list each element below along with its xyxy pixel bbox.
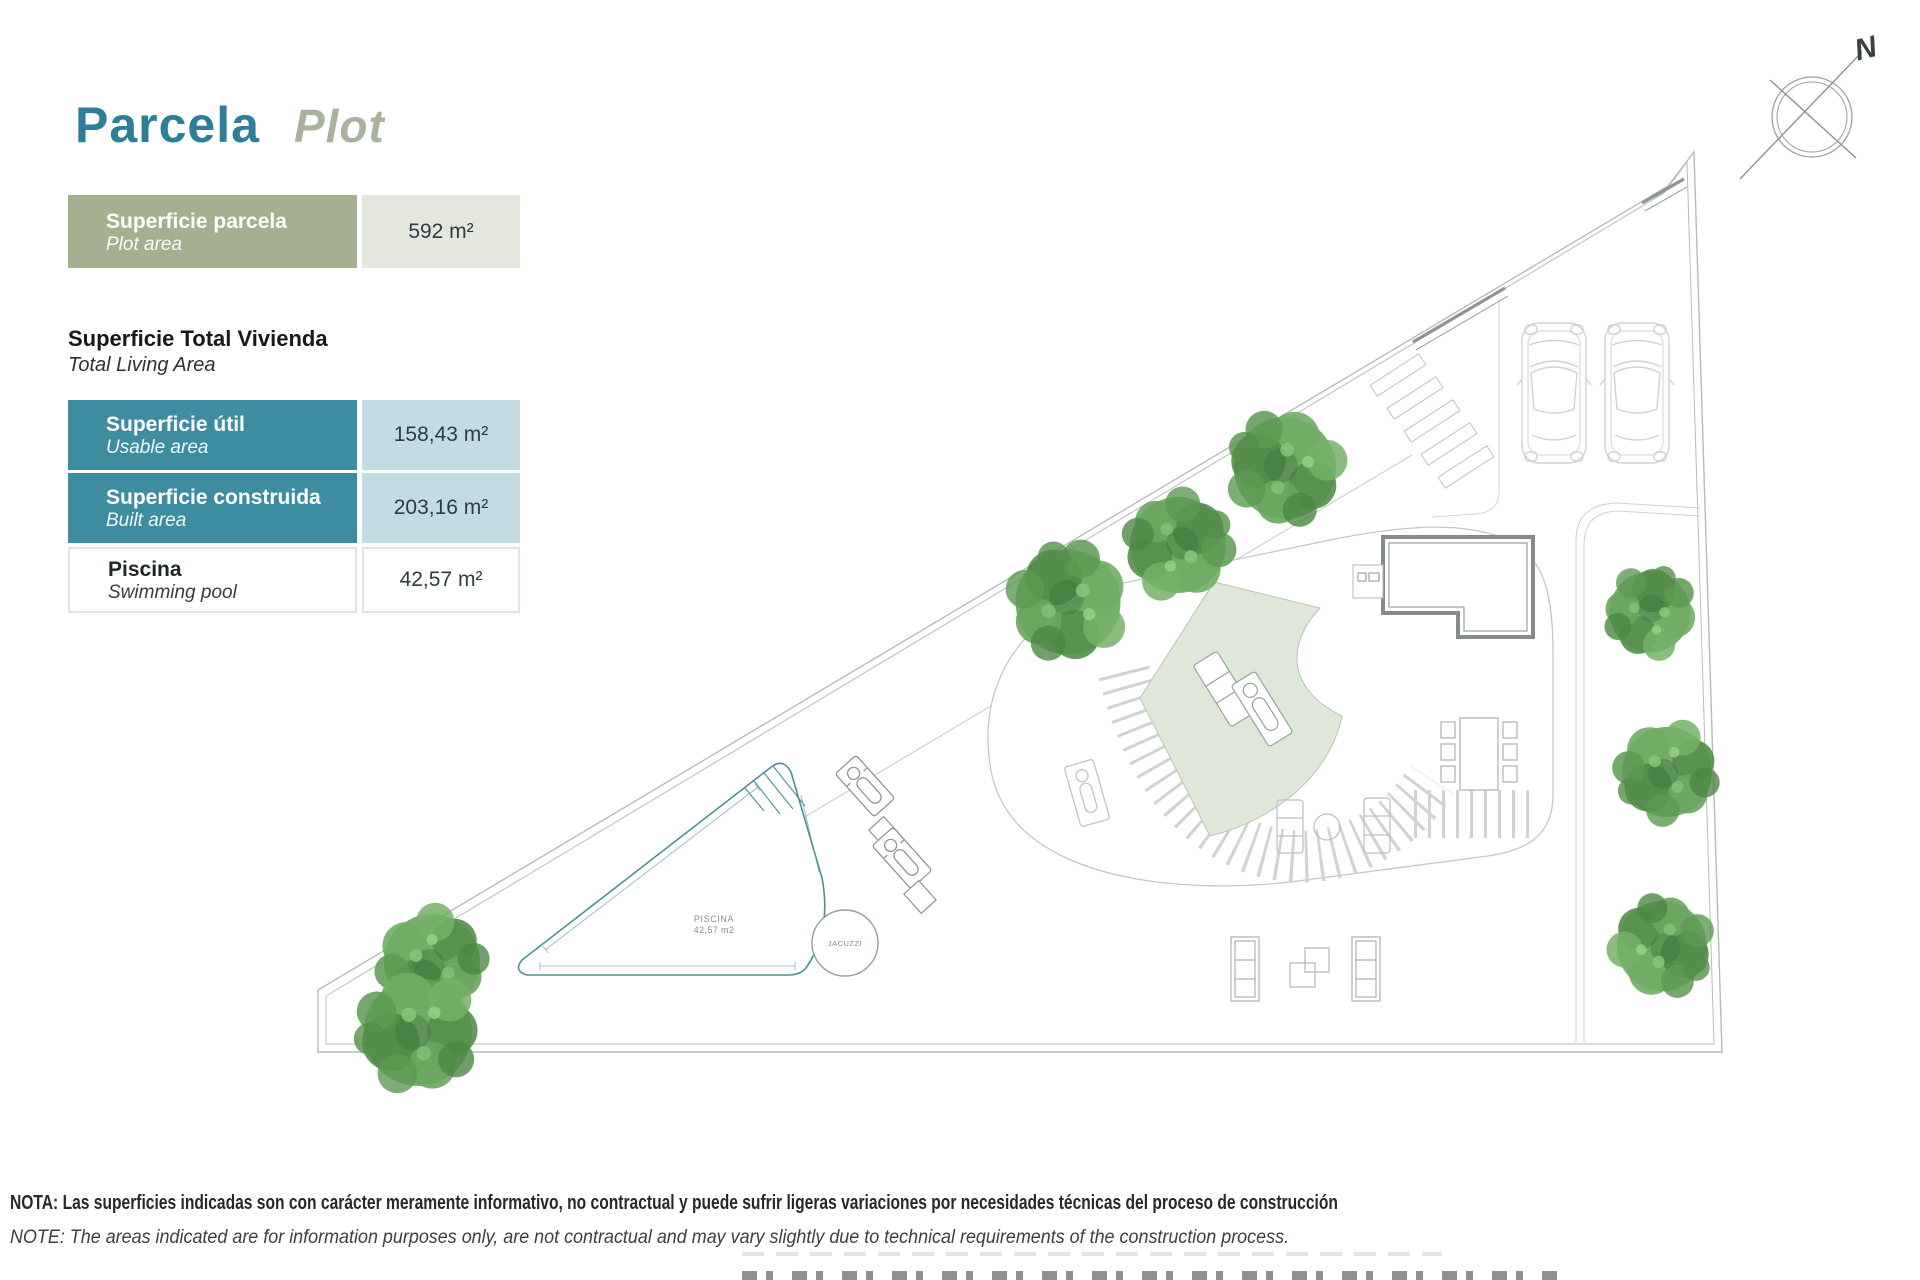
terrace-deck <box>988 527 1553 886</box>
side-table-icon <box>869 817 901 850</box>
side-table-icon <box>904 881 936 914</box>
compass-icon: N <box>1740 30 1881 179</box>
site-plan-drawing: PISCINA 42,57 m2 JACUZZI N <box>0 0 1920 1280</box>
label-en: Usable area <box>106 437 349 459</box>
site-plan-page: PISCINA 42,57 m2 JACUZZI N Parcela Plot <box>0 0 1920 1280</box>
compass-north-label: N <box>1851 30 1881 68</box>
garden-strip <box>1576 503 1700 1042</box>
plot-area-label-cell: Superficie parcela Plot area <box>68 195 357 268</box>
plot-boundary <box>318 152 1722 1052</box>
table-row-built-area: Superficie construida Built area 203,16 … <box>68 473 520 543</box>
living-area-heading: Superficie Total Vivienda Total Living A… <box>68 326 328 378</box>
lawn-lounger <box>1193 651 1293 747</box>
table-row-pool: Piscina Swimming pool 42,57 m² <box>68 547 520 613</box>
label-en: Plot area <box>106 234 349 256</box>
note-english: NOTE: The areas indicated are for inform… <box>10 1226 1289 1249</box>
lawn <box>1140 582 1342 836</box>
heading-es: Superficie Total Vivienda <box>68 326 328 352</box>
pool-value: 42,57 m² <box>362 547 520 613</box>
title-spanish: Parcela <box>75 96 260 154</box>
label-es: Superficie parcela <box>106 210 349 234</box>
cropped-text-artifact <box>742 1271 1560 1280</box>
cropped-text-artifact <box>742 1252 1442 1256</box>
title-english: Plot <box>294 99 385 153</box>
deck-furniture <box>1277 798 1390 853</box>
heading-en: Total Living Area <box>68 352 328 378</box>
walkway-edge <box>620 455 1412 927</box>
jacuzzi <box>812 910 878 976</box>
table-row-usable-area: Superficie útil Usable area 158,43 m² <box>68 400 520 470</box>
label-es: Superficie construida <box>106 486 349 510</box>
house-footprint <box>1353 537 1533 637</box>
utility-room <box>1353 565 1383 598</box>
stairs <box>1370 354 1494 488</box>
table-row-plot-area: Superficie parcela Plot area 592 m² <box>68 195 520 268</box>
usable-area-label-cell: Superficie útil Usable area <box>68 400 357 470</box>
trees <box>327 393 1737 1124</box>
label-es: Piscina <box>108 558 347 582</box>
label-es: Superficie útil <box>106 413 349 437</box>
dining-table <box>1441 718 1517 790</box>
pool-label: PISCINA <box>694 914 734 924</box>
sofa-set <box>1231 937 1380 1001</box>
parking-apron <box>1432 300 1499 517</box>
usable-area-value: 158,43 m² <box>362 400 520 470</box>
swimming-pool: PISCINA 42,57 m2 JACUZZI <box>518 763 878 976</box>
pool-area-label: 42,57 m2 <box>694 925 735 935</box>
built-area-value: 203,16 m² <box>362 473 520 543</box>
entrance-gate <box>1413 179 1687 350</box>
pool-label-cell: Piscina Swimming pool <box>68 547 357 613</box>
note-spanish: NOTA: Las superficies indicadas son con … <box>10 1192 1338 1215</box>
plot-area-value: 592 m² <box>362 195 520 268</box>
label-en: Swimming pool <box>108 582 347 604</box>
jacuzzi-label: JACUZZI <box>828 939 862 948</box>
page-title: Parcela Plot <box>75 96 385 154</box>
label-en: Built area <box>106 510 349 532</box>
built-area-label-cell: Superficie construida Built area <box>68 473 357 543</box>
deck-slats <box>1124 672 1538 857</box>
